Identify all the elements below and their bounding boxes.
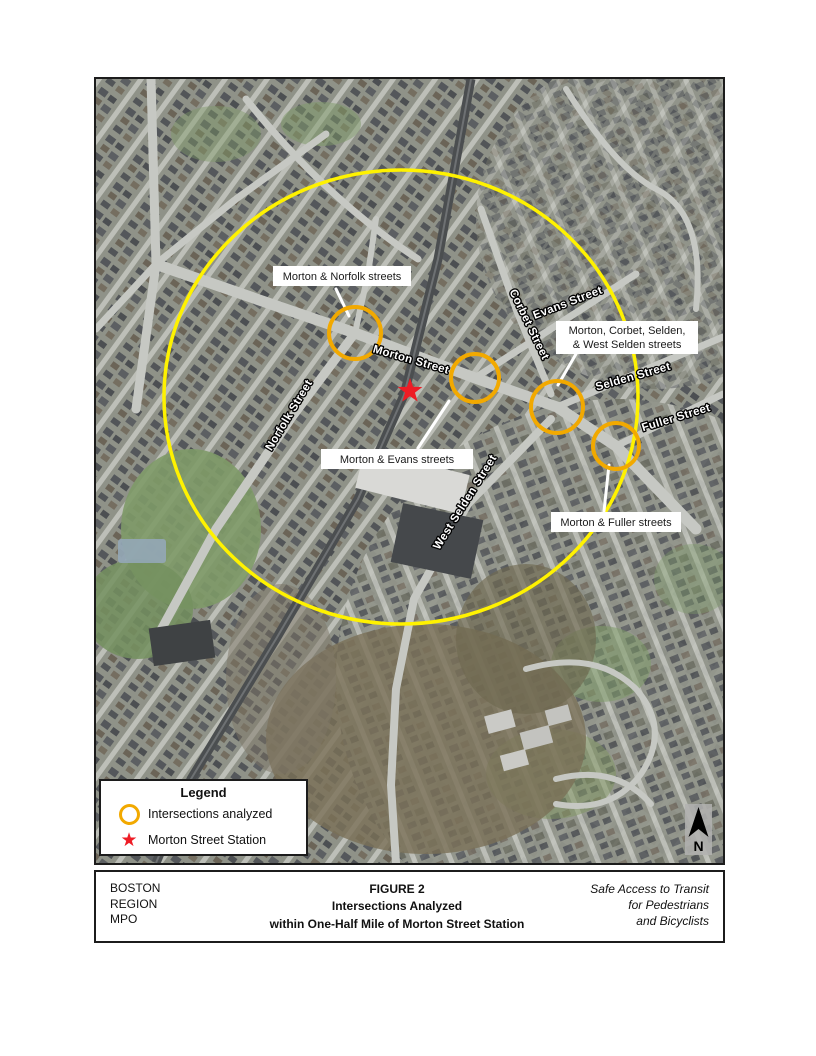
red-star-icon: ★: [120, 831, 137, 850]
figure-subtitle: within One-Half Mile of Morton Street St…: [245, 916, 549, 933]
document-page: Norfolk Street Morton Street Corbet Stre…: [0, 0, 816, 1056]
legend: Legend Intersections analyzed ★ Morton S…: [99, 779, 308, 856]
aerial-map: Norfolk Street Morton Street Corbet Stre…: [96, 79, 723, 863]
callout-morton-norfolk: Morton & Norfolk streets: [283, 271, 402, 283]
org-line: REGION: [110, 897, 245, 913]
project-line: and Bicyclists: [549, 913, 709, 929]
figure-title-block: FIGURE 2 Intersections Analyzed within O…: [245, 881, 549, 933]
map-figure: Norfolk Street Morton Street Corbet Stre…: [94, 77, 725, 865]
legend-item-intersections: Intersections analyzed: [114, 802, 306, 826]
callout-morton-fuller: Morton & Fuller streets: [560, 517, 672, 529]
org-line: BOSTON: [110, 881, 245, 897]
north-arrow-label: N: [693, 838, 703, 854]
org-line: MPO: [110, 912, 245, 928]
north-arrow: N: [685, 804, 712, 855]
project-line: for Pedestrians: [549, 897, 709, 913]
legend-label-intersections: Intersections analyzed: [148, 807, 272, 821]
figure-caption: BOSTON REGION MPO FIGURE 2 Intersections…: [94, 870, 725, 943]
organization-block: BOSTON REGION MPO: [110, 881, 245, 928]
legend-label-station: Morton Street Station: [148, 833, 266, 847]
callout-morton-corbet-line1: Morton, Corbet, Selden,: [569, 325, 686, 337]
legend-item-station: ★ Morton Street Station: [114, 828, 306, 852]
project-name-block: Safe Access to Transit for Pedestrians a…: [549, 881, 709, 930]
callout-morton-corbet-line2: & West Selden streets: [573, 339, 682, 351]
figure-title: Intersections Analyzed: [245, 898, 549, 915]
legend-title: Legend: [101, 785, 306, 800]
figure-number: FIGURE 2: [245, 881, 549, 898]
callout-morton-evans: Morton & Evans streets: [340, 454, 455, 466]
orange-ring-icon: [119, 804, 140, 825]
project-line: Safe Access to Transit: [549, 881, 709, 897]
